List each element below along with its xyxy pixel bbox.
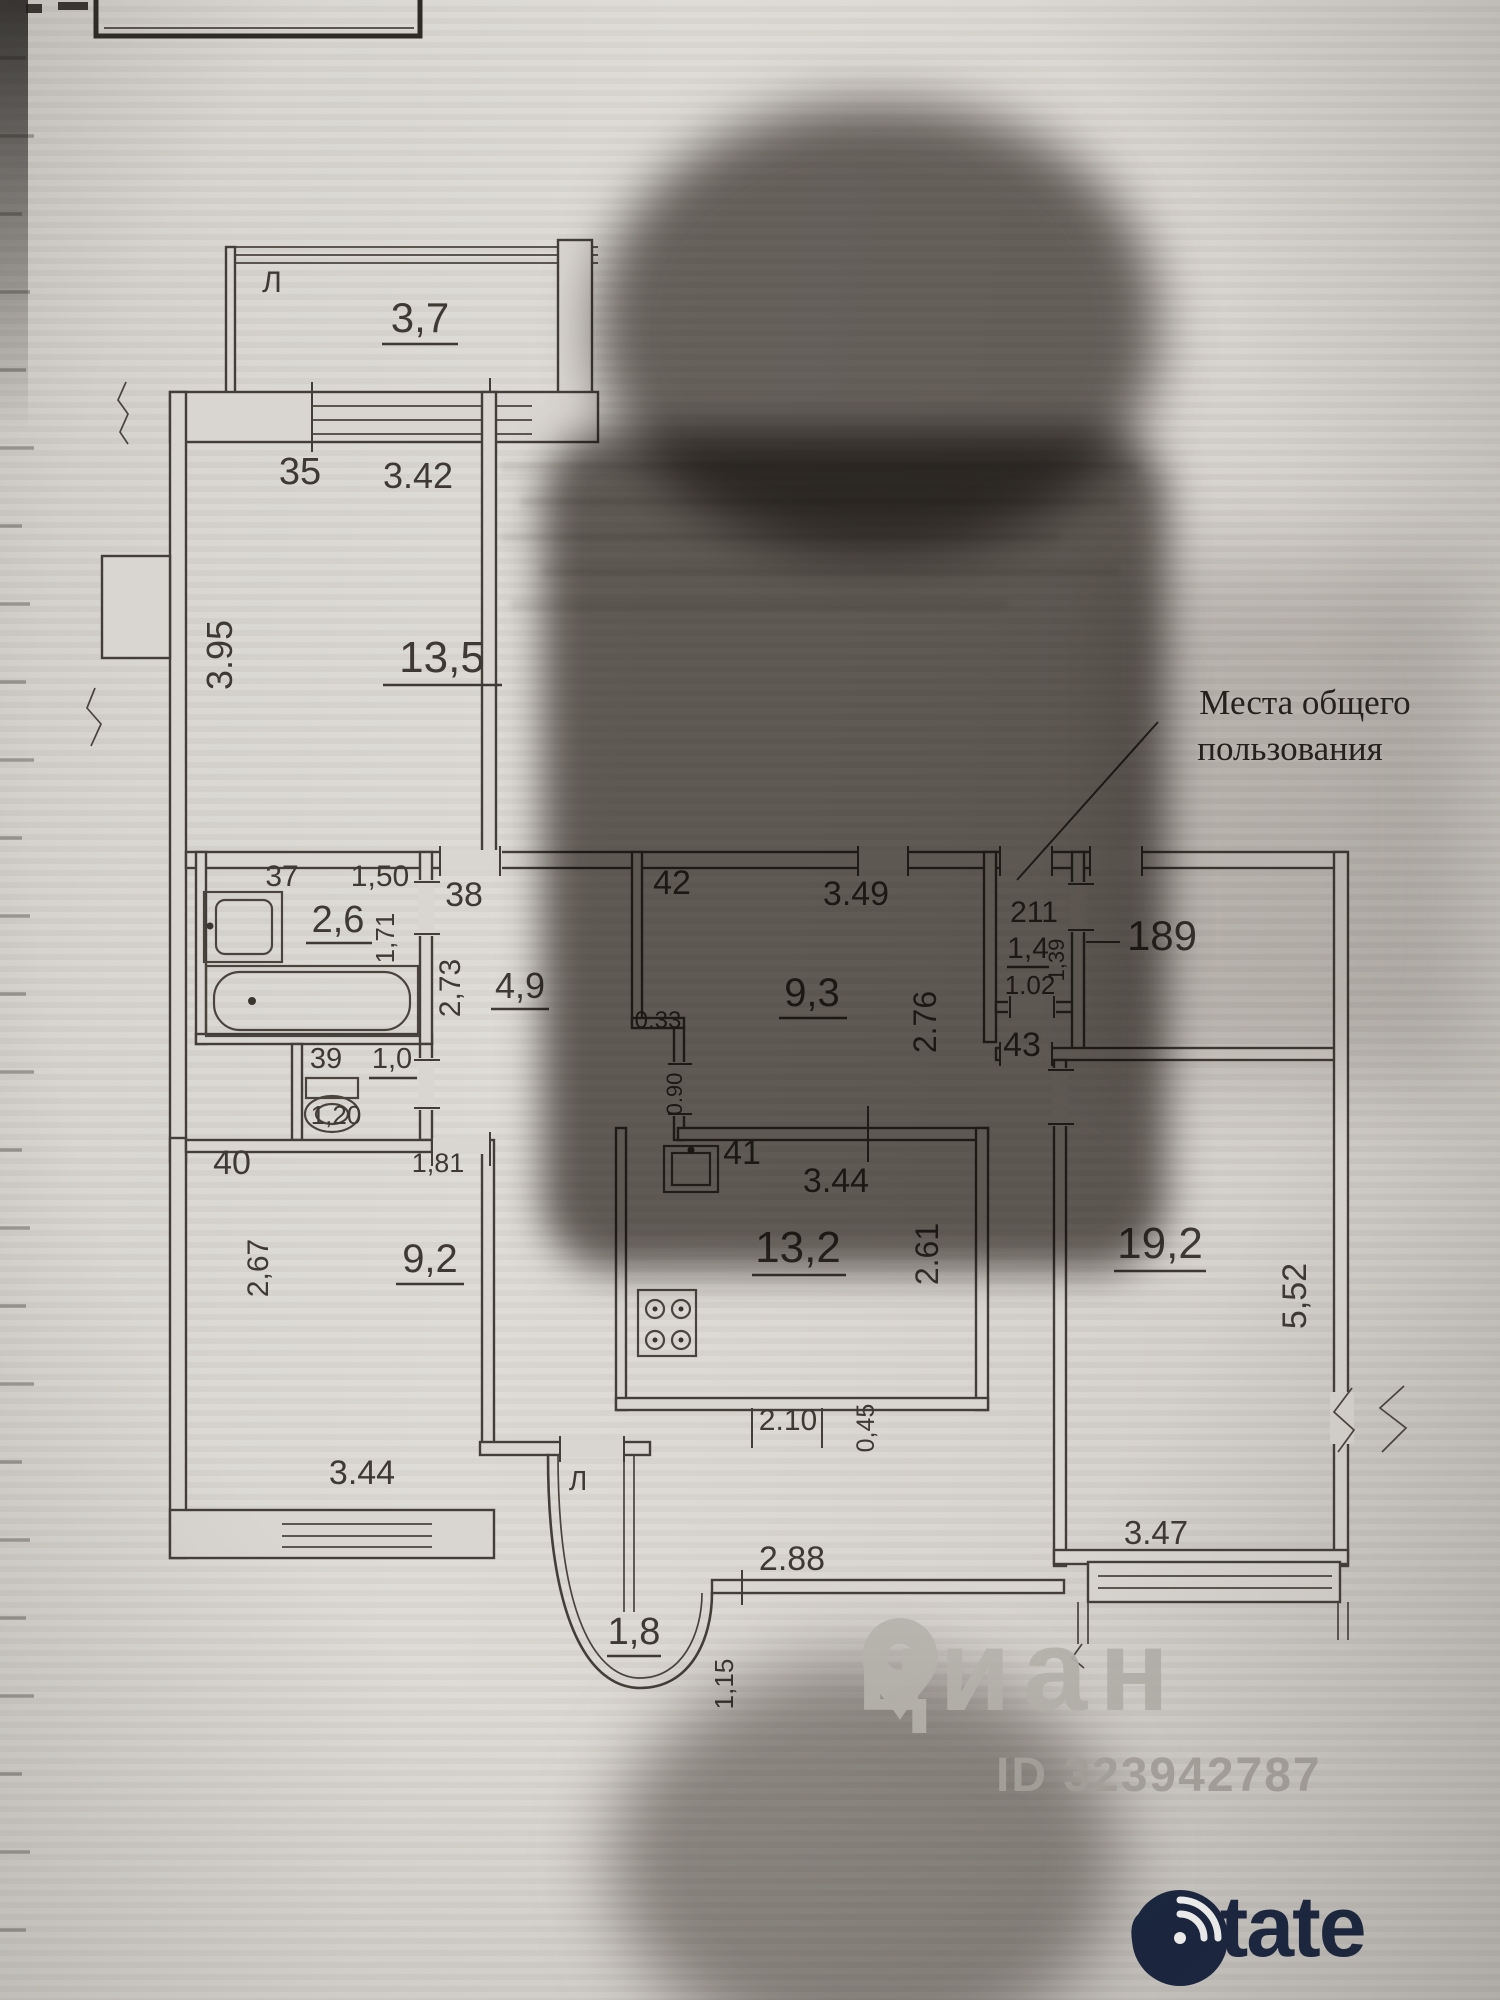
room19-area: 19,2 (1117, 1219, 1203, 1268)
restate-logo: estate (1128, 1884, 1365, 1970)
room40-height: 2,67 (242, 1239, 275, 1297)
room38-height: 2,73 (434, 959, 467, 1017)
room40-width: 3.44 (329, 1454, 395, 1492)
lobby-dim-115: 1,15 (709, 1659, 739, 1710)
floor-plan-drawing: Л 3,7 35 3.42 3.95 13,5 37 1,50 2,6 1,71… (0, 0, 1500, 2000)
bathroom-sink-icon (204, 892, 282, 962)
room19-width: 3.47 (1124, 1514, 1188, 1551)
lobby-dim-210: 2.10 (759, 1404, 817, 1437)
cian-watermark: циан (856, 1612, 1181, 1728)
balcony-bottom-area: 1,8 (608, 1611, 661, 1653)
room39-width: 1,20 (311, 1100, 362, 1130)
annotation-line1: Места общего (1199, 683, 1410, 722)
cian-pin-icon (856, 1612, 944, 1724)
room35-height: 3.95 (199, 620, 240, 690)
labels-layer: Л 3,7 35 3.42 3.95 13,5 37 1,50 2,6 1,71… (199, 266, 1314, 1709)
room40-number: 40 (213, 1144, 251, 1182)
room35-number: 35 (279, 451, 321, 493)
room37-height: 1,71 (370, 913, 400, 964)
room40-area: 9,2 (402, 1237, 458, 1281)
room211-area: 1,4 (1007, 932, 1049, 965)
room42-height: 2.76 (907, 991, 943, 1053)
room37-width: 1,50 (351, 860, 409, 893)
balcony-bottom-letter: Л (569, 1465, 587, 1496)
kitchen-sink-icon (664, 1146, 718, 1192)
bathtub-icon (206, 966, 418, 1036)
room38-area: 4,9 (495, 965, 545, 1006)
room38-number: 38 (445, 876, 483, 914)
lobby-dim-288: 2.88 (759, 1540, 825, 1578)
room189-number: 189 (1127, 912, 1197, 959)
annotation-line2: пользования (1197, 729, 1382, 768)
room211-number: 211 (1010, 896, 1058, 929)
room19-height: 5,52 (1276, 1263, 1314, 1329)
room42-number: 42 (653, 864, 691, 902)
hall-door-width: 1,81 (412, 1148, 465, 1178)
room43-number: 43 (1003, 1026, 1041, 1064)
room42-area: 9,3 (784, 971, 840, 1015)
room41-height: 2.61 (909, 1223, 945, 1285)
adjacent-drawing-fragment (26, 0, 420, 36)
room42-width: 3.49 (823, 875, 889, 913)
paper-edge-mark (118, 382, 128, 444)
room211-width: 1.02 (1005, 970, 1056, 1000)
wall-step-dim: 0.33 (635, 1007, 682, 1034)
scanned-floor-plan-page: Л 3,7 35 3.42 3.95 13,5 37 1,50 2,6 1,71… (0, 0, 1500, 2000)
door-090-dim: 0.90 (662, 1073, 687, 1116)
room39-area: 1,0 (372, 1043, 412, 1075)
room39-number: 39 (310, 1043, 342, 1075)
room37-number: 37 (265, 860, 298, 893)
bleed-through-text (500, 462, 1140, 610)
restate-signal-icon (1128, 1884, 1234, 1990)
common-areas-annotation: Места общего пользования (1017, 683, 1411, 880)
balcony-top-area: 3,7 (391, 294, 449, 341)
stove-icon (638, 1290, 696, 1356)
room41-number: 41 (723, 1134, 761, 1172)
lobby-dim-045: 0,45 (852, 1404, 880, 1453)
listing-id: ID 323942787 (996, 1748, 1322, 1803)
paper-ruled-marks (0, 58, 34, 1930)
room41-area: 13,2 (755, 1223, 841, 1272)
room37-area: 2,6 (312, 899, 365, 941)
room35-area: 13,5 (399, 633, 485, 682)
balcony-top-letter: Л (262, 266, 282, 299)
room35-width: 3.42 (383, 455, 453, 496)
room41-width: 3.44 (803, 1162, 869, 1200)
